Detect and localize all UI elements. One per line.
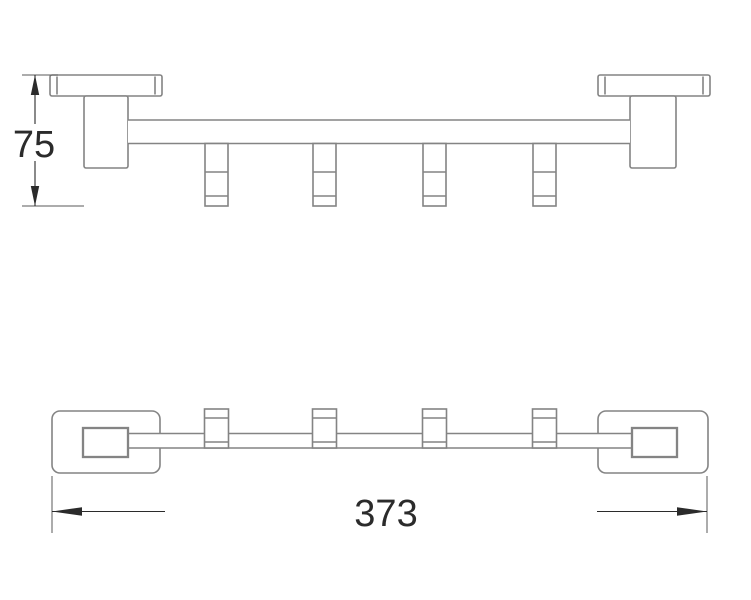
side-hook-3	[423, 144, 446, 207]
plan-left-post-section	[83, 428, 128, 457]
plan-hook-4	[533, 409, 557, 448]
side-left-wall-plate	[50, 75, 162, 96]
drawing-canvas: 75 373	[0, 0, 751, 600]
plan-view	[52, 409, 708, 473]
technical-drawing: 75 373	[0, 0, 751, 600]
width-arrow-left-icon	[52, 507, 82, 516]
height-arrow-down-icon	[31, 186, 39, 206]
side-hook-2	[313, 144, 336, 207]
side-right-wall-plate	[598, 75, 710, 96]
plan-hook-1	[205, 409, 229, 448]
side-left-post	[84, 96, 128, 168]
side-view	[50, 75, 710, 206]
side-view-hooks	[205, 144, 556, 207]
plan-hook-2	[313, 409, 337, 448]
width-dimension-label: 373	[354, 493, 417, 535]
plan-hook-3	[423, 409, 447, 448]
width-dimension: 373	[52, 476, 707, 535]
side-rail-fill	[128, 120, 630, 144]
side-rail-bar	[128, 120, 630, 144]
side-right-post	[630, 96, 676, 168]
height-dimension-label: 75	[13, 124, 55, 166]
height-arrow-up-icon	[31, 75, 39, 95]
plan-right-post-section	[632, 428, 677, 457]
width-arrow-right-icon	[677, 507, 707, 516]
side-hook-4	[533, 144, 556, 207]
side-hook-1	[205, 144, 228, 207]
